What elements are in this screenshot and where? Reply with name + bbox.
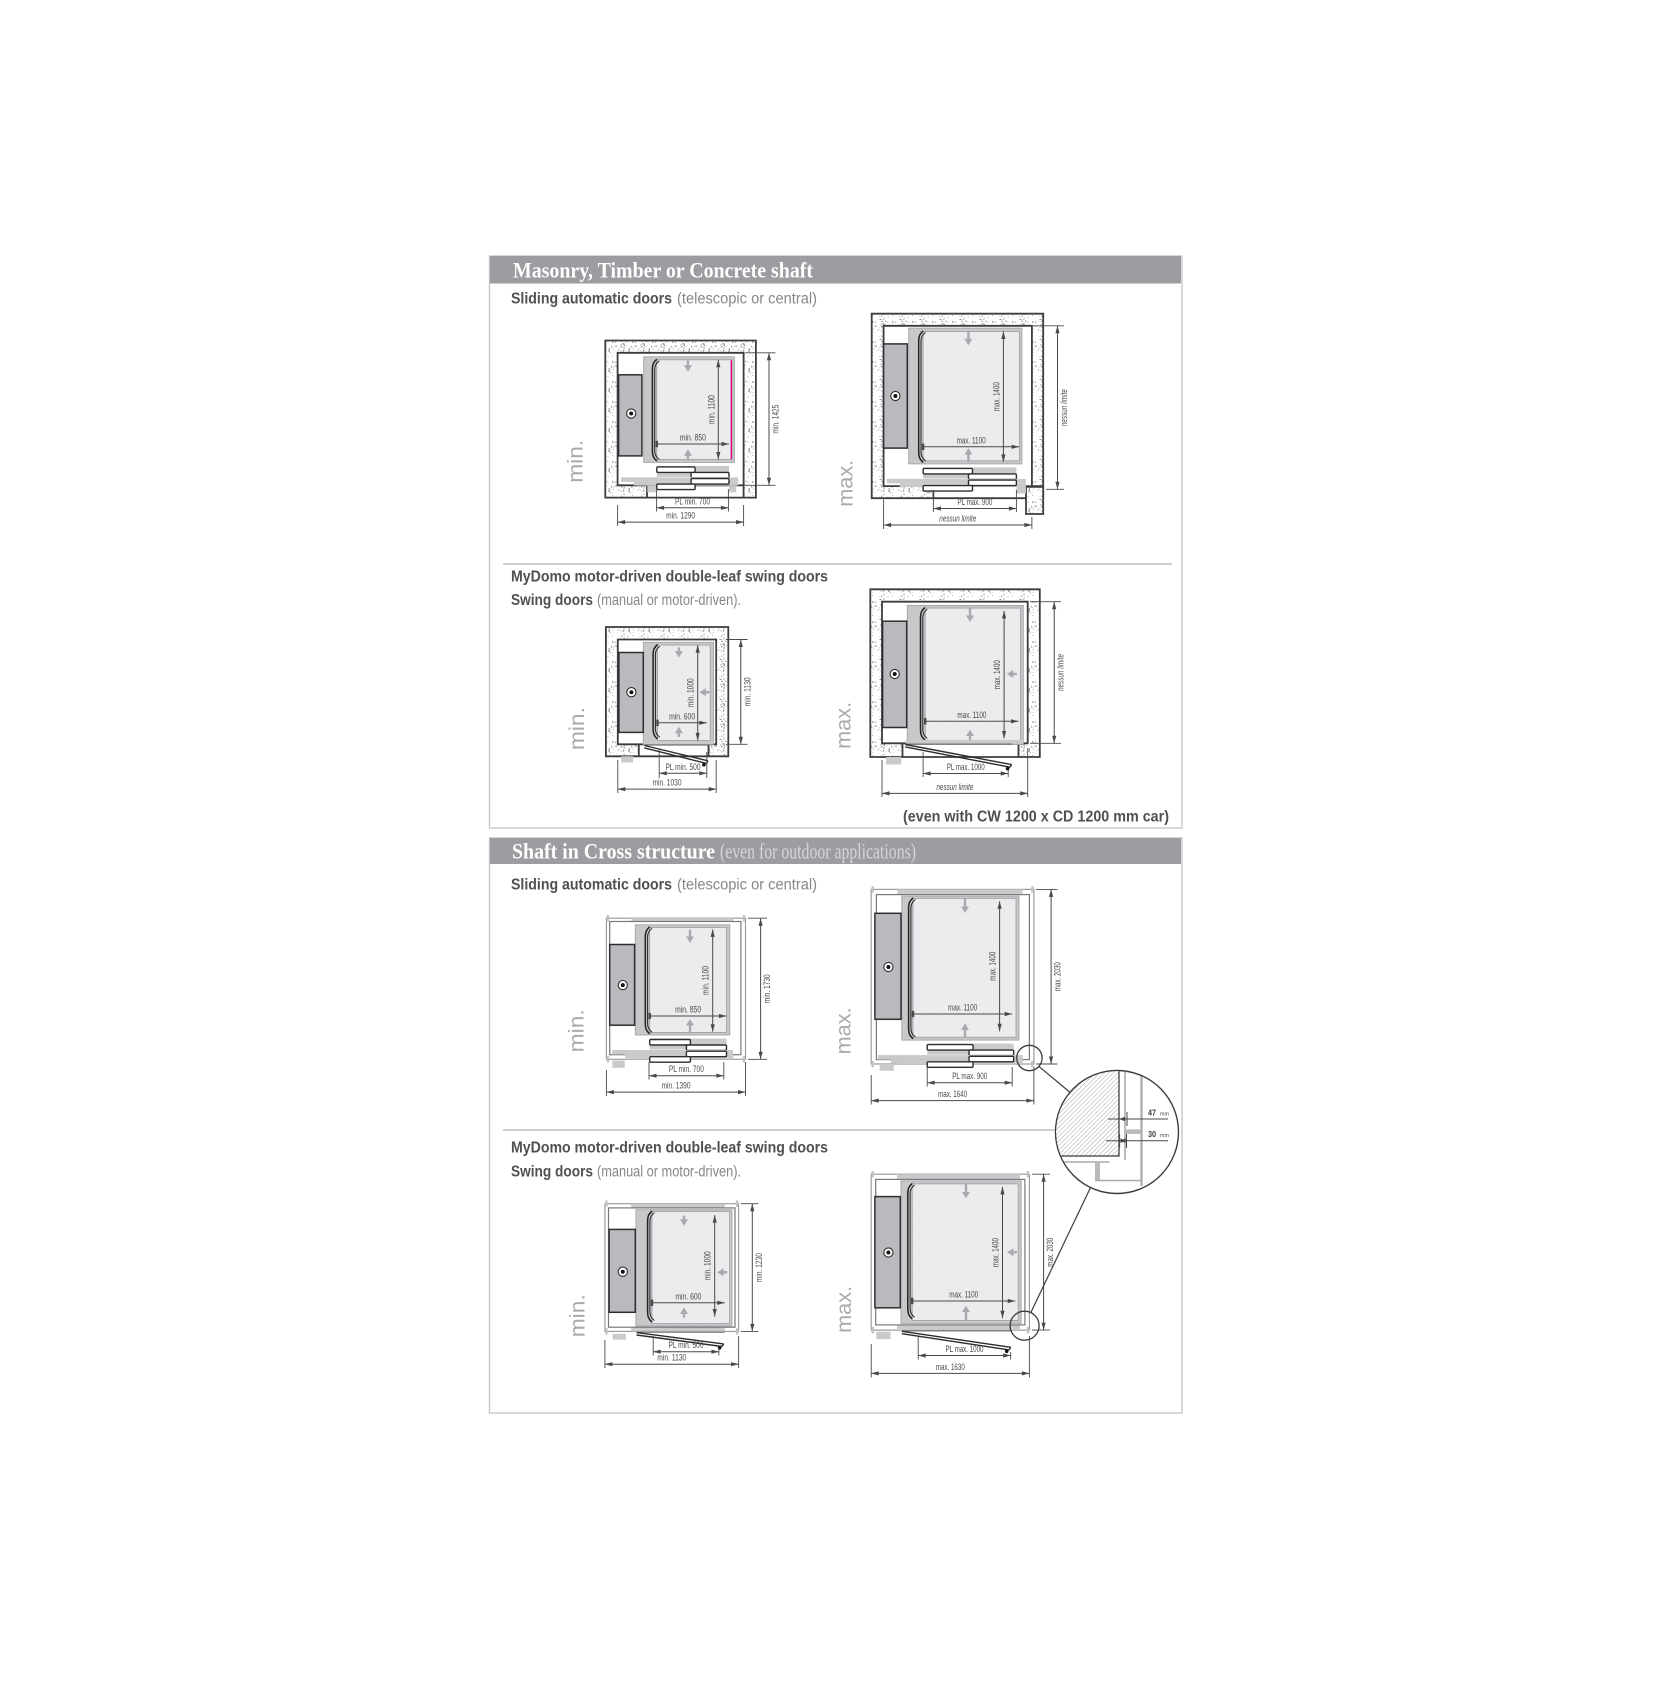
svg-text:min. 1130: min. 1130 — [657, 1352, 686, 1363]
svg-text:max.: max. — [832, 1286, 856, 1333]
svg-text:max.: max. — [834, 460, 858, 507]
svg-text:max.: max. — [832, 1007, 856, 1054]
svg-text:min.: min. — [566, 1294, 590, 1337]
svg-text:min. 1100: min. 1100 — [705, 395, 716, 424]
svg-text:PL min. 500: PL min. 500 — [666, 761, 701, 772]
svg-text:Sliding automatic doors: Sliding automatic doors — [511, 877, 672, 894]
svg-text:nessun limite: nessun limite — [939, 513, 976, 524]
svg-text:(even with CW 1200 x CD 1200 m: (even with CW 1200 x CD 1200 mm car) — [903, 809, 1169, 826]
svg-text:nessun limite: nessun limite — [1058, 389, 1069, 426]
svg-text:PL max. 900: PL max. 900 — [957, 496, 992, 507]
svg-text:min. 1425: min. 1425 — [770, 405, 781, 434]
svg-text:min. 1130: min. 1130 — [741, 677, 752, 706]
svg-text:min. 850: min. 850 — [675, 1004, 701, 1015]
svg-text:max. 1640: max. 1640 — [938, 1088, 967, 1099]
svg-text:Sliding automatic doors: Sliding automatic doors — [511, 291, 672, 308]
svg-text:Shaft in Cross structure: Shaft in Cross structure — [512, 839, 715, 864]
svg-text:max. 1100: max. 1100 — [949, 1289, 978, 1300]
svg-text:mm: mm — [1160, 1112, 1169, 1118]
svg-text:30: 30 — [1148, 1130, 1156, 1139]
svg-text:PL min. 700: PL min. 700 — [669, 1063, 704, 1074]
svg-text:(telescopic or central): (telescopic or central) — [677, 291, 817, 308]
svg-text:PL min. 700: PL min. 700 — [675, 495, 710, 506]
svg-text:Masonry, Timber or Concrete sh: Masonry, Timber or Concrete shaft — [513, 258, 814, 283]
svg-text:max. 1100: max. 1100 — [957, 709, 986, 720]
svg-text:max.: max. — [832, 702, 856, 749]
svg-text:min. 1230: min. 1230 — [753, 1253, 764, 1282]
svg-text:mm: mm — [1160, 1133, 1169, 1139]
svg-text:min. 1000: min. 1000 — [685, 678, 696, 707]
svg-text:(even for outdoor applications: (even for outdoor applications) — [720, 839, 916, 864]
svg-text:min. 850: min. 850 — [680, 432, 706, 443]
svg-text:min. 1390: min. 1390 — [662, 1080, 691, 1091]
svg-text:max. 2030: max. 2030 — [1052, 962, 1063, 991]
svg-text:PL max. 900: PL max. 900 — [952, 1070, 987, 1081]
svg-text:max. 1400: max. 1400 — [990, 382, 1001, 411]
svg-text:Swing doors: Swing doors — [511, 1163, 593, 1180]
svg-text:max. 1400: max. 1400 — [990, 1238, 1001, 1267]
svg-text:min. 1290: min. 1290 — [666, 510, 695, 521]
svg-text:(manual or motor-driven).: (manual or motor-driven). — [597, 1163, 741, 1180]
svg-text:min. 1000: min. 1000 — [702, 1251, 713, 1280]
svg-text:min. 600: min. 600 — [675, 1290, 701, 1301]
svg-text:min. 1100: min. 1100 — [700, 966, 711, 995]
svg-text:max. 2030: max. 2030 — [1044, 1238, 1055, 1267]
svg-text:min. 600: min. 600 — [669, 710, 695, 721]
svg-text:Swing doors: Swing doors — [511, 592, 593, 609]
svg-text:MyDomo motor-driven double-lea: MyDomo motor-driven double-leaf swing do… — [511, 569, 828, 586]
svg-text:nessun limite: nessun limite — [936, 781, 973, 792]
svg-text:PL min. 500: PL min. 500 — [669, 1339, 704, 1350]
svg-text:max. 1630: max. 1630 — [936, 1361, 965, 1372]
svg-text:PL max. 1000: PL max. 1000 — [946, 1343, 984, 1354]
svg-text:max. 1400: max. 1400 — [991, 660, 1002, 689]
svg-text:MyDomo motor-driven double-lea: MyDomo motor-driven double-leaf swing do… — [511, 1140, 828, 1157]
svg-text:min. 1030: min. 1030 — [653, 777, 682, 788]
svg-text:min.: min. — [565, 707, 589, 750]
svg-text:PL max. 1000: PL max. 1000 — [947, 761, 985, 772]
svg-text:max. 1100: max. 1100 — [957, 434, 986, 445]
svg-text:47: 47 — [1148, 1109, 1156, 1118]
svg-text:min. 1730: min. 1730 — [761, 974, 772, 1003]
svg-text:(telescopic or central): (telescopic or central) — [677, 877, 817, 894]
svg-text:max. 1400: max. 1400 — [987, 952, 998, 981]
svg-text:(manual or motor-driven).: (manual or motor-driven). — [597, 592, 741, 609]
svg-text:min.: min. — [565, 1009, 589, 1052]
svg-text:max. 1100: max. 1100 — [948, 1002, 977, 1013]
svg-text:nessun limite: nessun limite — [1055, 654, 1066, 691]
svg-text:min.: min. — [564, 440, 588, 483]
